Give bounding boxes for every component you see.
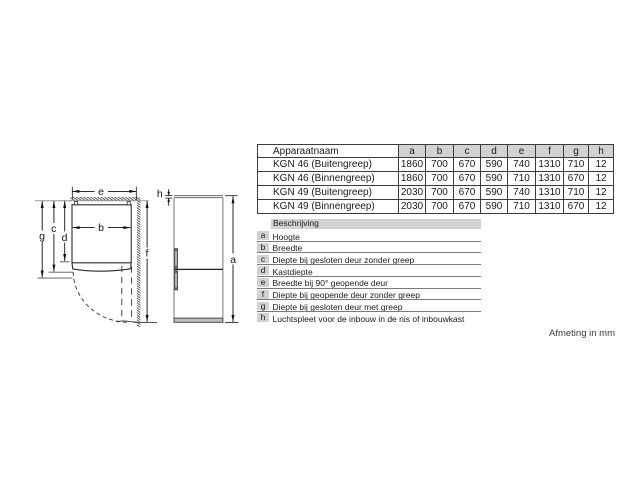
svg-text:c: c	[51, 223, 56, 235]
svg-text:e: e	[98, 186, 104, 198]
svg-text:b: b	[98, 222, 104, 234]
svg-text:a: a	[230, 254, 236, 266]
svg-text:h: h	[157, 188, 163, 200]
svg-text:d: d	[62, 232, 68, 244]
svg-text:f: f	[145, 248, 148, 260]
svg-text:g: g	[39, 231, 45, 243]
